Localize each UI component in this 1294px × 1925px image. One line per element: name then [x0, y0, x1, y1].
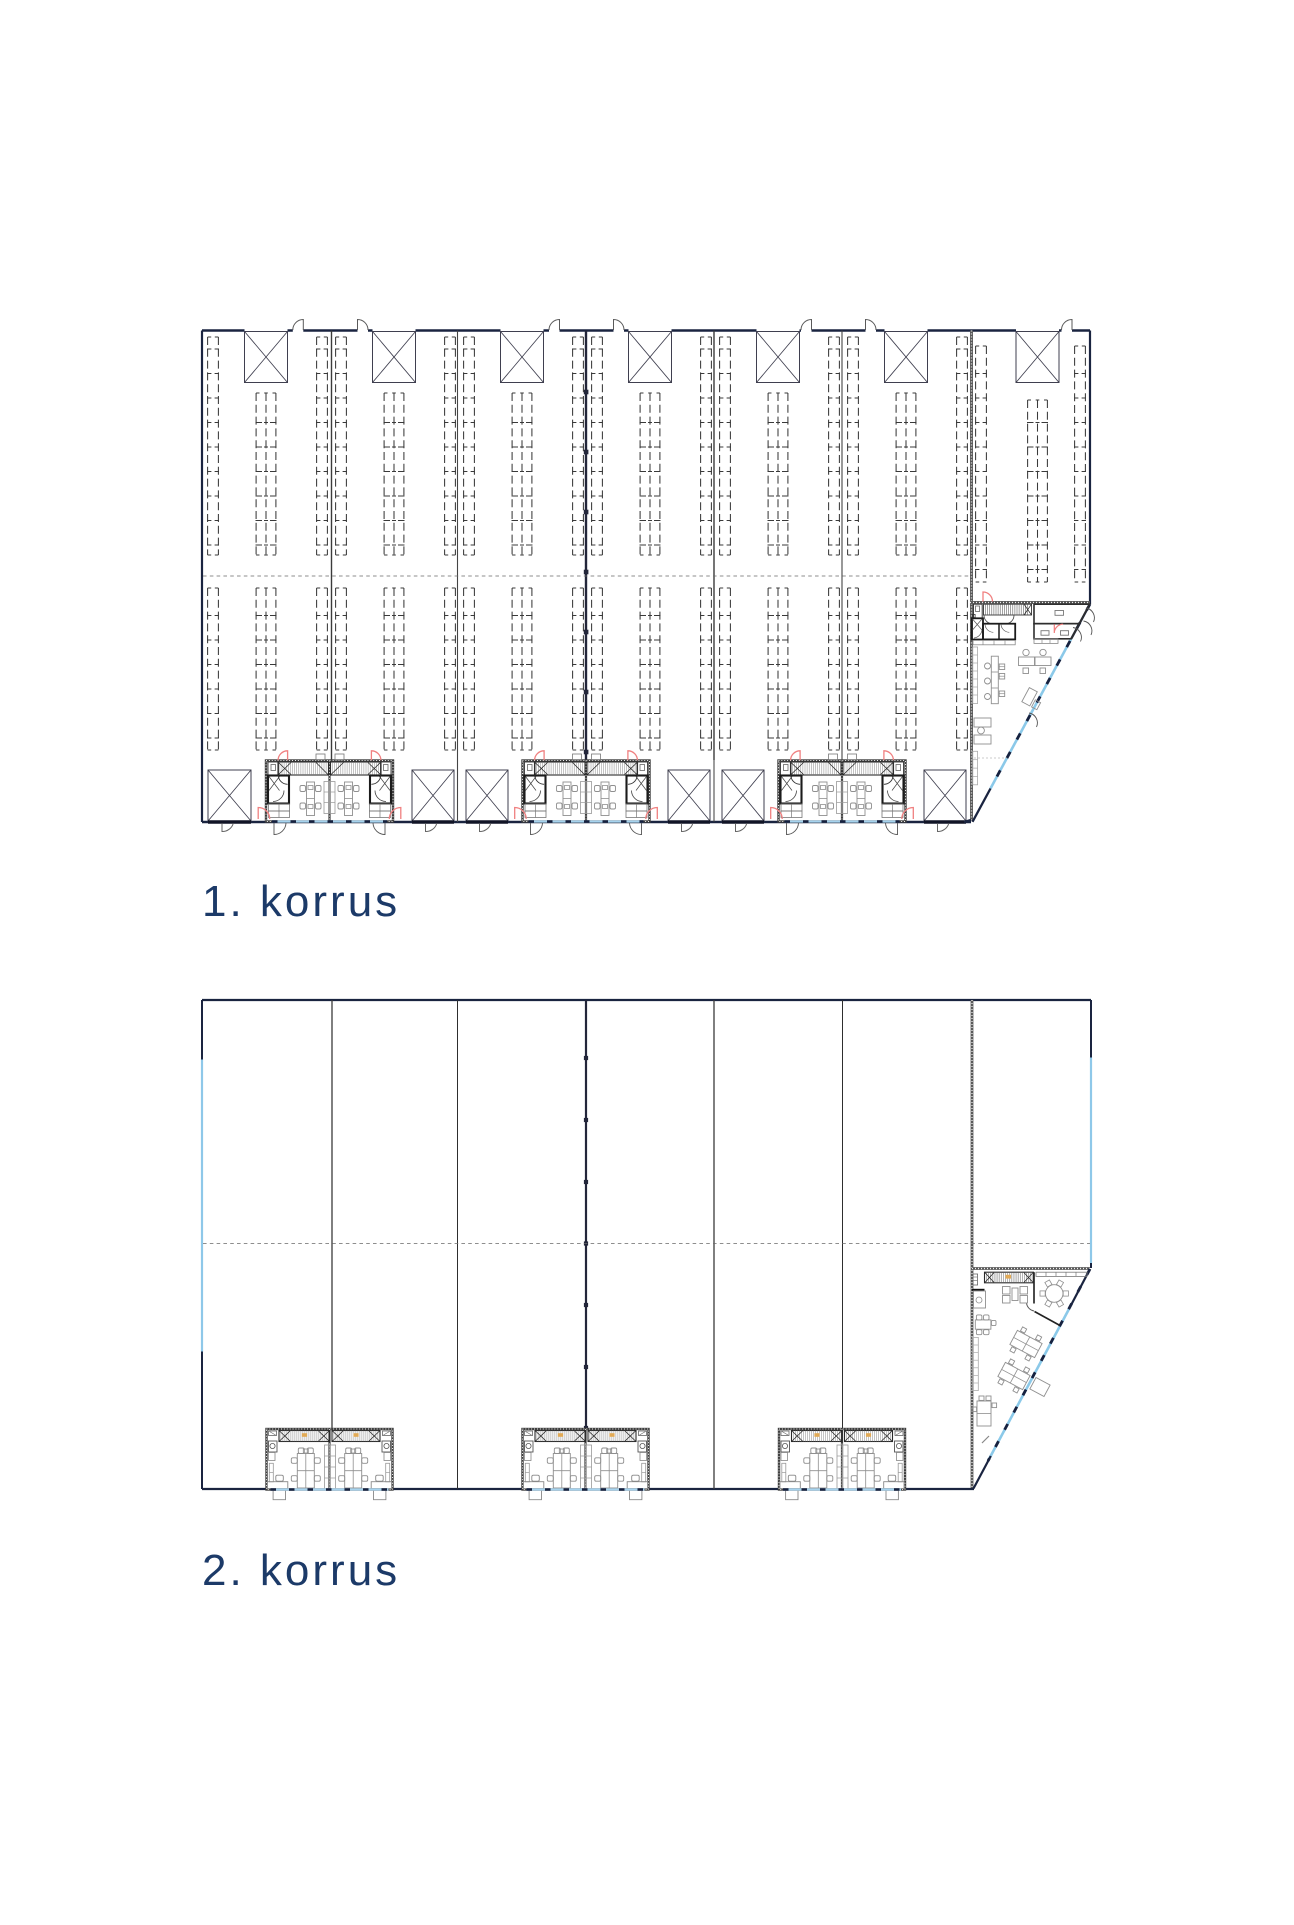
svg-text:2. korrus: 2. korrus: [202, 1546, 400, 1595]
svg-text:1. korrus: 1. korrus: [202, 877, 400, 926]
